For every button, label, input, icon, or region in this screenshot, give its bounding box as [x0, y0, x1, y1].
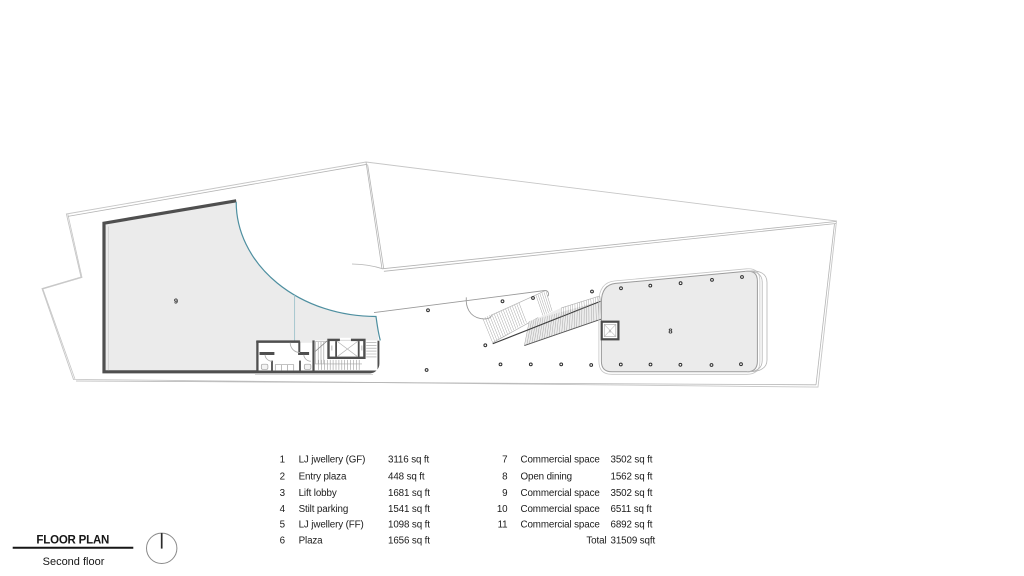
svg-text:10: 10 — [497, 504, 508, 515]
svg-text:Commercial space: Commercial space — [521, 520, 601, 531]
svg-text:LJ jwellery (FF): LJ jwellery (FF) — [299, 520, 364, 531]
svg-text:Entry plaza: Entry plaza — [299, 471, 347, 482]
svg-text:1681 sq ft: 1681 sq ft — [388, 488, 430, 499]
svg-text:6: 6 — [280, 536, 286, 547]
svg-text:11: 11 — [498, 520, 508, 531]
svg-text:2: 2 — [280, 471, 285, 482]
svg-text:31509 sqft: 31509 sqft — [611, 536, 656, 547]
svg-text:3502 sq ft: 3502 sq ft — [611, 488, 653, 499]
svg-text:LJ jwellery (GF): LJ jwellery (GF) — [299, 455, 366, 466]
svg-text:Plaza: Plaza — [299, 536, 324, 547]
svg-text:1: 1 — [280, 455, 285, 466]
svg-text:Open dining: Open dining — [521, 471, 573, 482]
svg-text:8: 8 — [502, 471, 508, 482]
svg-text:3: 3 — [280, 488, 286, 499]
svg-text:6511 sq ft: 6511 sq ft — [611, 504, 652, 515]
svg-text:Commercial space: Commercial space — [521, 504, 601, 515]
svg-text:4: 4 — [280, 504, 286, 515]
svg-text:1562 sq ft: 1562 sq ft — [611, 471, 653, 482]
svg-text:Commercial space: Commercial space — [521, 488, 601, 499]
svg-text:Commercial space: Commercial space — [521, 455, 601, 466]
svg-text:Stilt parking: Stilt parking — [299, 504, 349, 515]
svg-text:5: 5 — [280, 520, 286, 531]
svg-text:8: 8 — [668, 327, 672, 336]
svg-text:9: 9 — [502, 488, 507, 499]
svg-text:1098 sq ft: 1098 sq ft — [388, 520, 430, 531]
svg-text:9: 9 — [174, 297, 178, 306]
svg-text:1541 sq ft: 1541 sq ft — [388, 504, 430, 515]
svg-text:448 sq ft: 448 sq ft — [388, 471, 425, 482]
svg-text:6892 sq ft: 6892 sq ft — [611, 520, 653, 531]
svg-text:Second floor: Second floor — [43, 556, 105, 568]
svg-text:1656 sq ft: 1656 sq ft — [388, 536, 430, 547]
svg-text:7: 7 — [502, 455, 507, 466]
svg-text:3502 sq ft: 3502 sq ft — [611, 455, 653, 466]
svg-text:FLOOR PLAN: FLOOR PLAN — [36, 535, 109, 547]
svg-text:Lift lobby: Lift lobby — [299, 488, 337, 499]
svg-text:Total: Total — [586, 536, 606, 547]
svg-text:3116 sq ft: 3116 sq ft — [388, 455, 429, 466]
